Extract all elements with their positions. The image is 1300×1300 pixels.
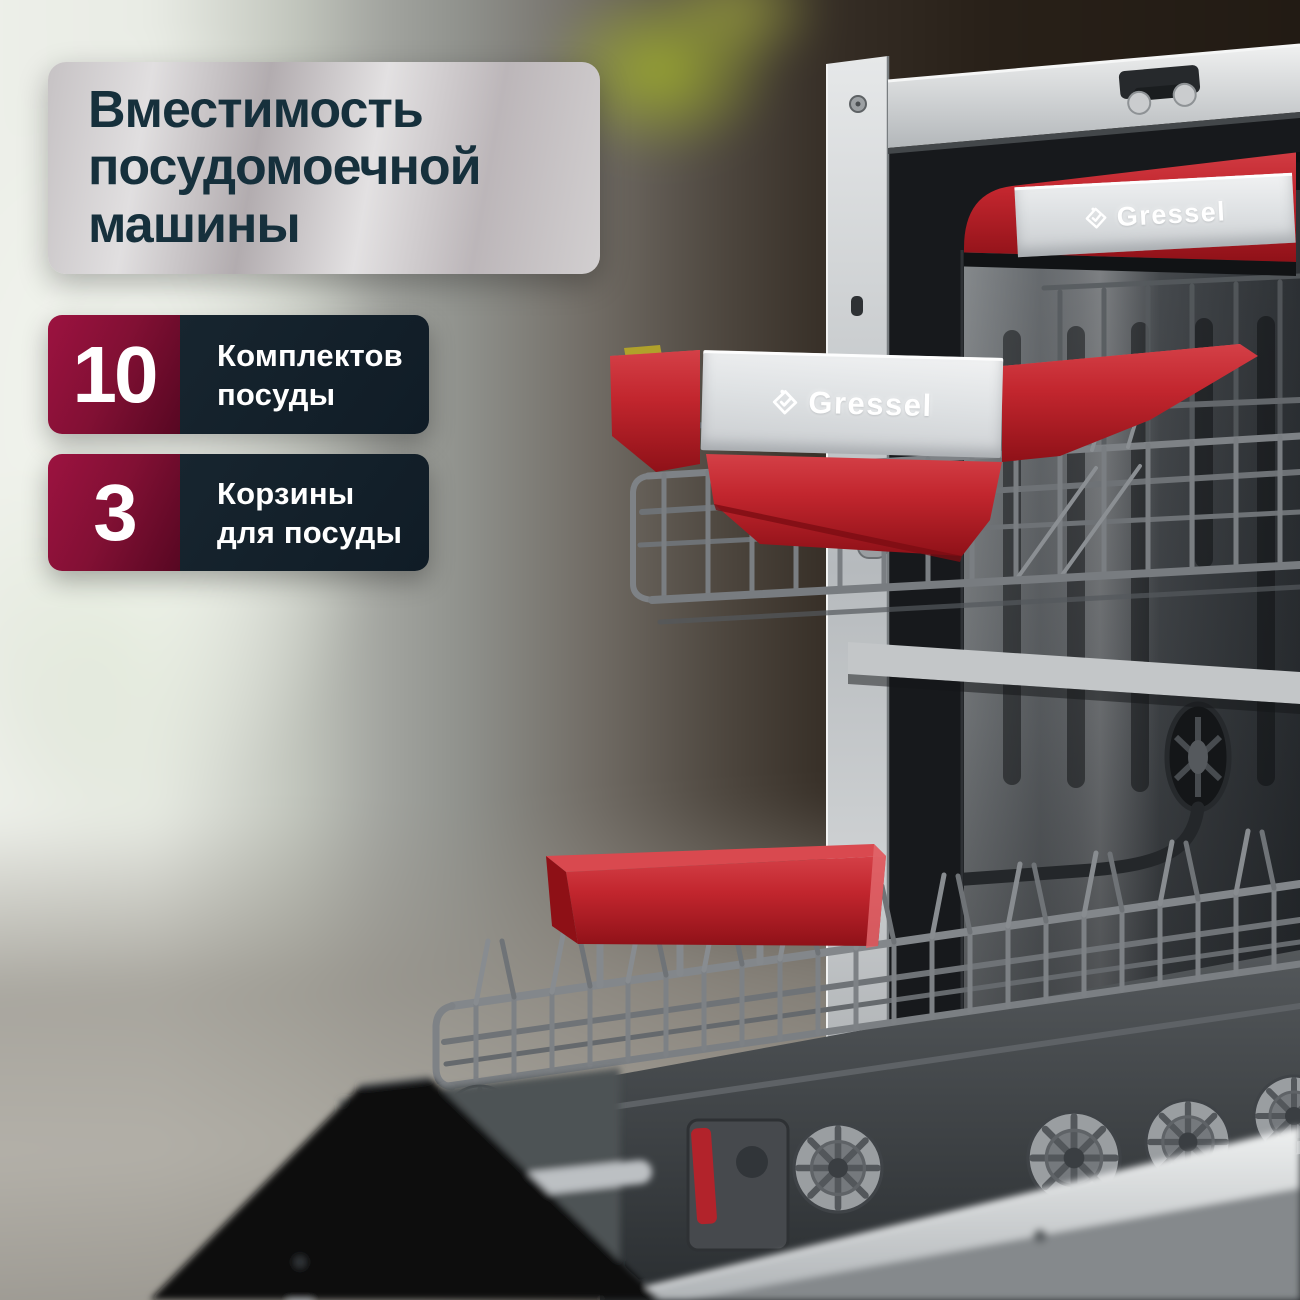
stat-label: Комплектов посуды xyxy=(180,315,429,434)
page-title: Вместимость посудомоечной машины xyxy=(48,82,600,254)
stat-value: 3 xyxy=(48,454,180,571)
stat-badge-baskets: 3 Корзины для посуды xyxy=(48,454,429,571)
product-image: Gressel Gressel Вместимость посудомоечно… xyxy=(0,0,1300,1300)
title-card: Вместимость посудомоечной машины xyxy=(48,62,600,274)
stat-badge-place-settings: 10 Комплектов посуды xyxy=(48,315,429,434)
stat-label: Корзины для посуды xyxy=(180,454,429,571)
brand-name: Gressel xyxy=(1116,196,1227,233)
gressel-diamond-icon xyxy=(771,388,800,417)
stat-label-line1: Комплектов xyxy=(217,336,429,375)
basket-brand-plate-middle: Gressel xyxy=(701,350,1004,458)
stat-label-line2: для посуды xyxy=(217,513,429,552)
stat-label-line2: посуды xyxy=(217,375,429,414)
stat-value: 10 xyxy=(48,315,180,434)
basket-brand-plate-top: Gressel xyxy=(1014,173,1295,257)
stat-label-line1: Корзины xyxy=(217,474,429,513)
gressel-diamond-icon xyxy=(1083,205,1108,230)
brand-name: Gressel xyxy=(808,385,933,424)
